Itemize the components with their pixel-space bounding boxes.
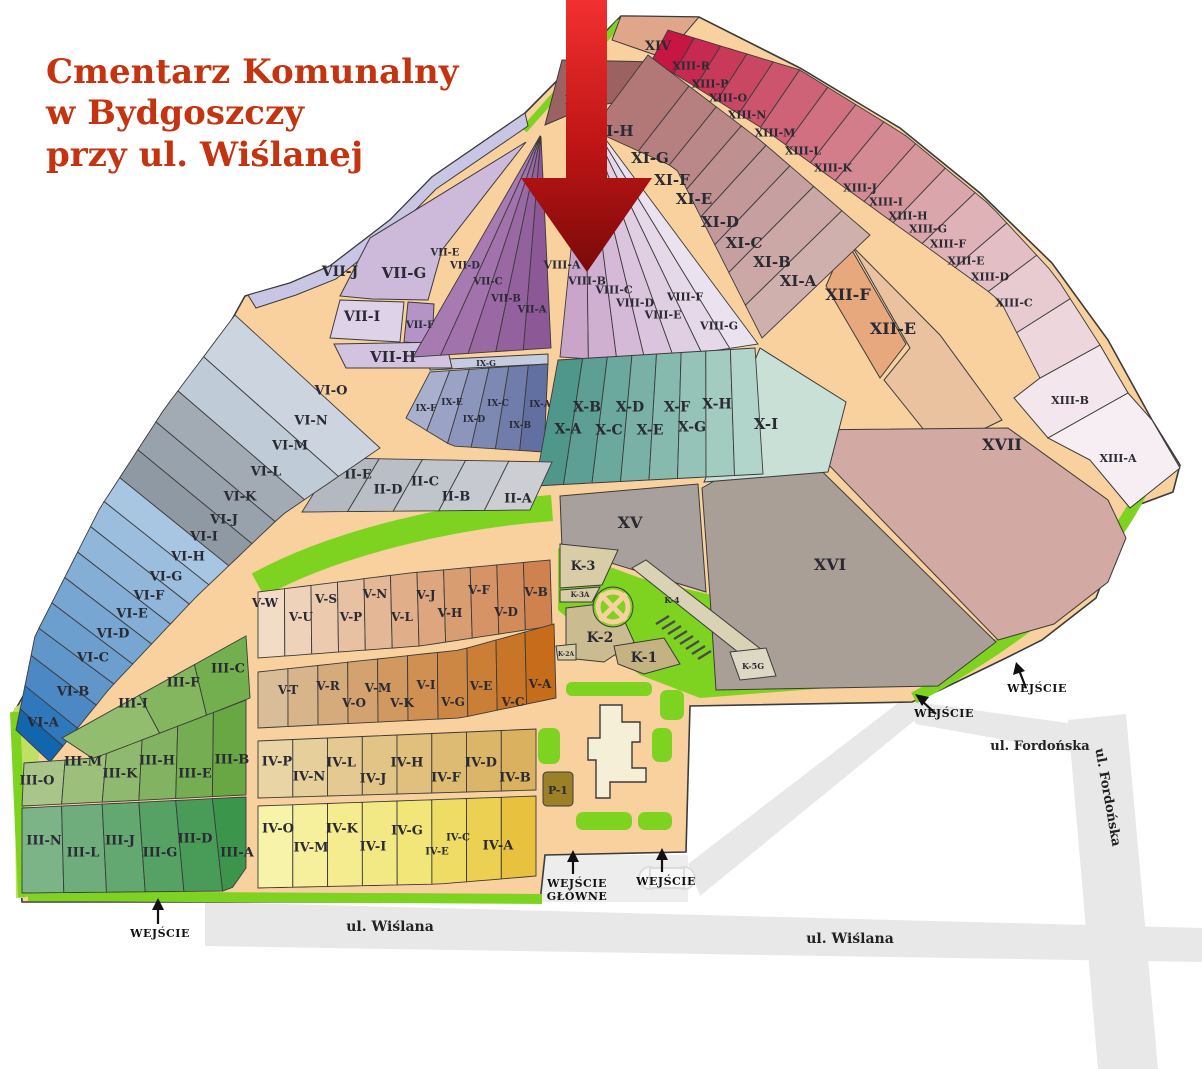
label-V-W: V-W	[251, 596, 279, 610]
label-VI-E: VI-E	[115, 606, 148, 621]
label-IX-F: IX-F	[416, 404, 438, 414]
entrance-label-main-1: WEJŚCIE	[546, 876, 607, 890]
region-III-B	[212, 700, 246, 797]
label-V-D: V-D	[493, 605, 518, 619]
fordonska-road	[1068, 714, 1158, 1069]
label-XIII-D: XIII-D	[971, 271, 1010, 284]
region-V-H	[444, 567, 473, 642]
label-VII-F: VII-F	[405, 320, 434, 331]
label-IX-A: IX-A	[529, 400, 552, 410]
map-title: Cmentarz Komunalny w Bydgoszczy przy ul.…	[46, 52, 486, 176]
label-X-I: X-I	[754, 415, 778, 433]
label-IV-P: IV-P	[262, 754, 293, 769]
label-II-C: II-C	[411, 474, 439, 489]
label-VII-J: VII-J	[321, 264, 359, 280]
label-XIV: XIV	[645, 39, 672, 54]
label-IX-E: IX-E	[441, 398, 463, 408]
label-IX-C: IX-C	[487, 399, 509, 409]
label-III-L: III-L	[67, 845, 100, 860]
label-III-O: III-O	[20, 773, 55, 788]
label-K-3: K-3	[571, 559, 596, 574]
entrance-label-main-2: GŁÓWNE	[547, 889, 608, 903]
label-XII-E: XII-E	[870, 319, 916, 338]
label-VIII-A: VIII-A	[542, 259, 581, 272]
label-IV-K: IV-K	[326, 821, 359, 836]
label-II-A: II-A	[504, 491, 533, 506]
label-XIII-E: XIII-E	[948, 255, 985, 268]
label-XIII-C: XIII-C	[995, 297, 1033, 310]
label-III-N: III-N	[26, 833, 62, 848]
region-V-A	[525, 624, 556, 704]
label-VII-B: VII-B	[490, 293, 521, 304]
label-III-A: III-A	[220, 845, 255, 860]
label-VII-H: VII-H	[369, 348, 416, 366]
label-K-5G: K-5G	[742, 661, 764, 671]
label-VIII-C: VIII-C	[594, 284, 633, 297]
label-V-J: V-J	[415, 588, 435, 602]
label-VI-D: VI-D	[96, 626, 130, 641]
label-VI-L: VI-L	[250, 464, 282, 479]
map-title-line1: Cmentarz Komunalny	[46, 52, 486, 93]
region-V-O	[318, 662, 348, 725]
label-IV-G: IV-G	[391, 823, 423, 838]
label-III-D: III-D	[178, 831, 213, 846]
label-K-2A: K-2A	[558, 651, 574, 658]
label-VI-G: VI-G	[149, 569, 183, 584]
region-III-E	[176, 713, 214, 799]
label-K-2: K-2	[587, 630, 614, 646]
label-V-G: V-G	[440, 695, 465, 709]
label-X-E: X-E	[637, 423, 664, 439]
region-IV-K	[328, 802, 363, 886]
label-X-G: X-G	[678, 420, 706, 436]
region-V-F	[470, 565, 499, 638]
region-X-G	[706, 350, 735, 478]
label-K-3A: K-3A	[571, 590, 590, 599]
label-IV-M: IV-M	[293, 840, 328, 855]
label-P-1: P-1	[548, 784, 568, 797]
label-IV-J: IV-J	[360, 771, 387, 786]
street-wislana-label-2: ul. Wiślana	[806, 931, 894, 947]
label-VI-B: VI-B	[56, 684, 90, 699]
label-VI-I: VI-I	[189, 529, 218, 544]
label-XIII-H: XIII-H	[889, 210, 928, 223]
label-V-T: V-T	[277, 683, 298, 697]
label-V-B: V-B	[523, 585, 548, 599]
region-III-N	[22, 806, 64, 893]
label-V-O: V-O	[341, 696, 366, 710]
label-X-C: X-C	[595, 423, 622, 439]
label-XI-B: XI-B	[753, 253, 791, 271]
label-V-M: V-M	[364, 681, 392, 695]
label-III-I: III-I	[118, 696, 148, 711]
label-X-D: X-D	[616, 400, 644, 416]
label-III-E: III-E	[178, 766, 212, 781]
region-IV-O	[258, 805, 293, 888]
map-title-line3: przy ul. Wiślanej	[46, 135, 486, 176]
label-VI-F: VI-F	[133, 588, 166, 603]
label-IV-L: IV-L	[326, 755, 356, 770]
label-V-P: V-P	[339, 610, 362, 624]
entrance-label-plaza: WEJŚCIE	[635, 874, 696, 888]
label-III-C: III-C	[211, 661, 245, 676]
region-V-D	[497, 563, 526, 635]
label-V-H: V-H	[437, 606, 463, 620]
label-V-S: V-S	[314, 592, 337, 606]
label-VII-D: VII-D	[449, 260, 480, 271]
region-IV-G	[397, 800, 432, 885]
label-V-E: V-E	[469, 679, 493, 693]
label-IV-D: IV-D	[465, 755, 497, 770]
label-IV-A: IV-A	[483, 838, 515, 853]
label-XIII-G: XIII-G	[909, 223, 947, 236]
label-XVII: XVII	[982, 435, 1022, 454]
label-V-U: V-U	[288, 610, 313, 624]
label-VI-M: VI-M	[271, 438, 308, 453]
label-IV-H: IV-H	[391, 755, 424, 770]
label-XIII-L: XIII-L	[785, 145, 822, 158]
label-IV-F: IV-F	[431, 770, 462, 785]
label-X-H: X-H	[702, 397, 731, 413]
label-IX-G: IX-G	[476, 358, 496, 368]
label-VIII-G: VIII-G	[699, 320, 738, 333]
label-XIII-A: XIII-A	[1099, 452, 1137, 465]
label-XI-C: XI-C	[726, 234, 763, 252]
entrance-label-east: WEJŚCIE	[1006, 681, 1067, 695]
label-IX-D: IX-D	[463, 415, 486, 425]
label-XI-F: XI-F	[654, 171, 690, 189]
label-XIII-R: XIII-R	[672, 60, 711, 73]
label-VI-J: VI-J	[209, 512, 238, 527]
entrance-label-sw: WEJŚCIE	[129, 926, 190, 940]
label-IV-N: IV-N	[293, 769, 326, 784]
map-title-line2: w Bydgoszczy	[46, 93, 486, 134]
label-K-1: K-1	[631, 650, 658, 666]
label-V-F: V-F	[467, 583, 490, 597]
label-XI-D: XI-D	[701, 213, 739, 231]
label-K-4: K-4	[664, 595, 680, 605]
label-IV-O: IV-O	[262, 821, 294, 836]
label-III-G: III-G	[143, 845, 178, 860]
label-X-F: X-F	[664, 400, 690, 416]
label-XIII-P: XIII-P	[692, 78, 729, 91]
label-III-H: III-H	[139, 753, 175, 768]
label-XIII-M: XIII-M	[755, 127, 796, 140]
label-VII-C: VII-C	[472, 276, 502, 287]
label-XI-E: XI-E	[676, 190, 712, 208]
label-V-C: V-C	[501, 695, 525, 709]
label-VIII-F: VIII-F	[666, 291, 704, 304]
label-V-R: V-R	[315, 679, 340, 693]
label-XVI: XVI	[814, 555, 846, 574]
street-wislana-label-1: ul. Wiślana	[346, 919, 434, 935]
label-VII-A: VII-A	[516, 304, 546, 315]
label-VII-G: VII-G	[381, 264, 427, 282]
label-III-M: III-M	[64, 754, 102, 769]
label-II-D: II-D	[374, 482, 403, 497]
label-III-J: III-J	[105, 833, 135, 848]
label-XIII-J: XIII-J	[843, 182, 877, 195]
label-XIII-I: XIII-I	[869, 196, 903, 209]
cemetery-map-page: XIII-RXIII-PXIII-OXIII-NXIII-MXIII-LXIII…	[0, 0, 1202, 1069]
label-II-B: II-B	[442, 489, 471, 504]
label-XI-G: XI-G	[631, 149, 669, 167]
label-XIII-O: XIII-O	[709, 92, 748, 105]
label-VI-C: VI-C	[76, 650, 109, 665]
label-XII-F: XII-F	[825, 285, 871, 304]
label-XV: XV	[618, 513, 643, 532]
label-III-K: III-K	[103, 766, 139, 781]
label-XIII-K: XIII-K	[814, 162, 853, 175]
label-VI-N: VI-N	[293, 413, 328, 428]
label-IV-E: IV-E	[425, 846, 449, 857]
label-IV-I: IV-I	[360, 839, 387, 854]
label-VIII-E: VIII-E	[644, 309, 682, 322]
label-X-B: X-B	[573, 400, 601, 416]
region-IV-N	[293, 738, 328, 797]
label-V-N: V-N	[362, 587, 387, 601]
label-V-K: V-K	[389, 696, 414, 710]
label-V-L: V-L	[390, 610, 413, 624]
label-VII-E: VII-E	[430, 247, 460, 258]
label-IV-B: IV-B	[499, 770, 531, 785]
label-XIII-B: XIII-B	[1051, 394, 1089, 407]
label-VI-O: VI-O	[314, 383, 348, 398]
label-VI-H: VI-H	[170, 549, 205, 564]
label-IV-C: IV-C	[446, 832, 470, 843]
label-V-I: V-I	[415, 678, 435, 692]
label-III-F: III-F	[167, 675, 201, 690]
label-VII-I: VII-I	[343, 309, 380, 325]
label-IX-B: IX-B	[509, 421, 532, 431]
label-III-B: III-B	[215, 752, 250, 767]
label-V-A: V-A	[528, 677, 552, 691]
region-V-T	[258, 669, 288, 728]
label-XIII-F: XIII-F	[930, 238, 967, 251]
entrance-connector-road	[688, 700, 920, 896]
label-VI-K: VI-K	[223, 489, 258, 504]
label-X-A: X-A	[554, 422, 582, 438]
label-VI-A: VI-A	[26, 715, 60, 730]
entrance-label-se: WEJŚCIE	[913, 706, 974, 720]
street-fordonska-label-1: ul. Fordońska	[990, 739, 1090, 754]
label-XI-A: XI-A	[780, 272, 817, 290]
